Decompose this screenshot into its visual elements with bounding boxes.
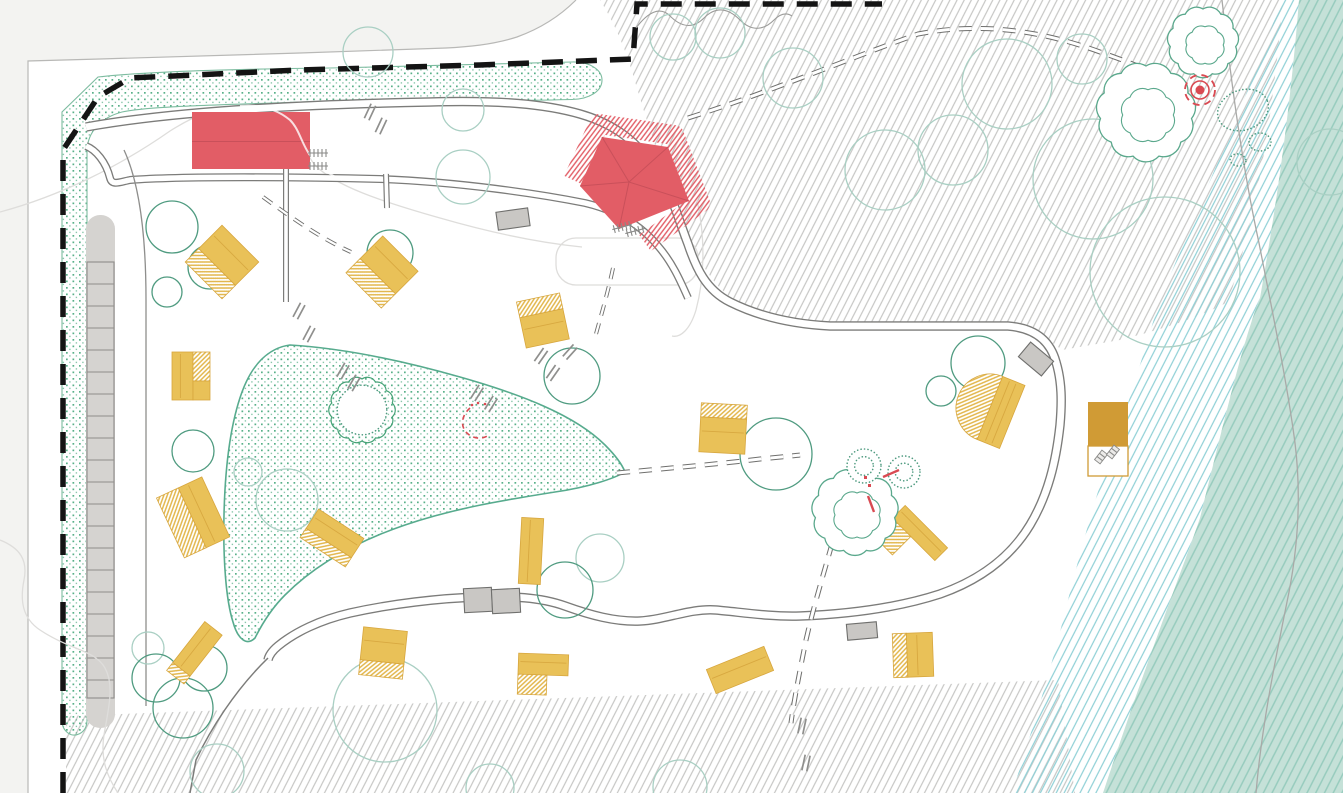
red-node [864,476,867,479]
sketched-tree-stipple [337,385,387,435]
cabin-solid-part [360,627,407,664]
driveway-stub [386,174,387,208]
utility-annex [1088,446,1128,476]
cabin [699,403,748,454]
cabin-solid-part [906,632,934,677]
site-plan-drawing [0,0,1343,793]
parking-bays [86,215,115,728]
utility-building [1088,402,1128,446]
reception-building [192,112,310,169]
cabin [172,352,210,400]
cabin [518,517,543,584]
cabin-hatch-part [701,403,748,419]
cabin-hatch-part [517,674,547,695]
cabin-solid-part [518,653,569,676]
cabin [516,293,569,348]
car-space [491,588,520,613]
red-dot [477,402,480,405]
cabin [359,627,408,679]
red-dot [484,403,487,406]
red-dot [471,404,474,407]
cabin [892,632,934,677]
cabin-solid-part [518,517,543,584]
car-space [463,587,492,612]
parking-strip [86,215,115,728]
cabin-solid-part [193,381,210,400]
cabin-solid-part [172,352,193,400]
cabin-hatch-part [892,633,908,677]
red-node [868,484,871,487]
car-space [496,208,530,230]
cabin-hatch-part [193,352,210,381]
car-space [846,622,877,641]
campfire-spot [1196,86,1205,95]
cabin-solid-part [699,417,747,454]
site-plan-canvas [0,0,1343,793]
